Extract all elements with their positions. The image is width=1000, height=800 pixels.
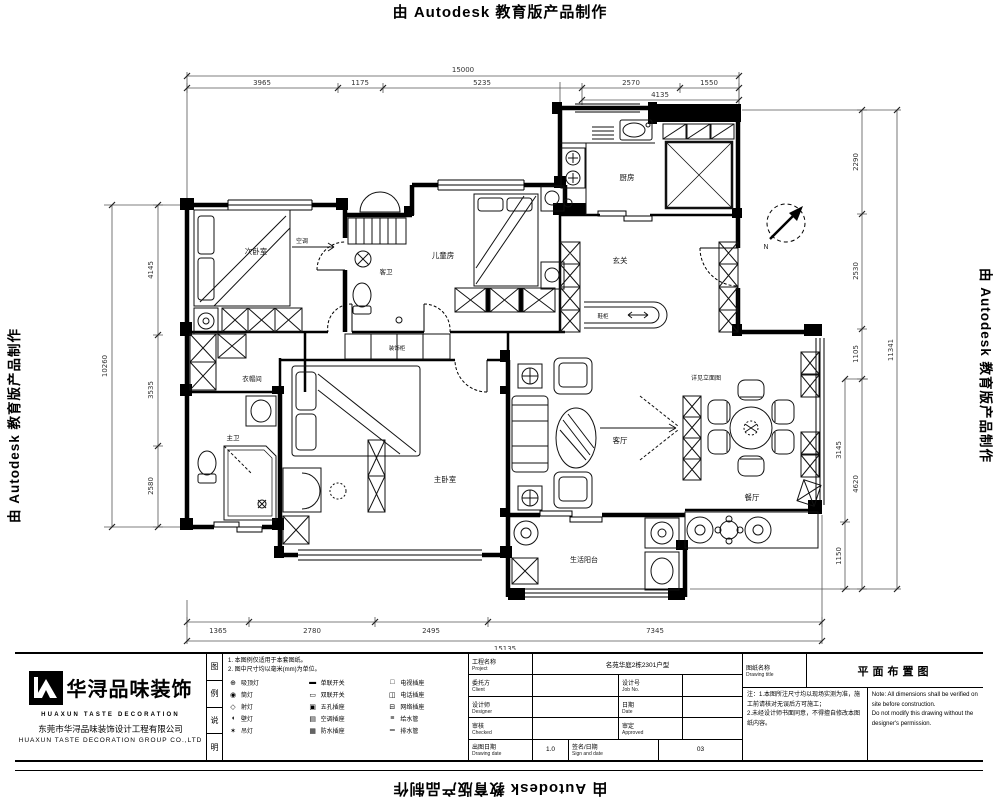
legend-label: 壁灯	[241, 714, 253, 723]
dim-label: 2290	[852, 153, 860, 171]
room-label-living-room: 客厅	[613, 435, 628, 445]
legend-label: 网络插座	[400, 702, 424, 711]
legend-label: 吊灯	[241, 726, 253, 735]
title-block-side-chars: 图 例 说 明	[207, 654, 223, 760]
company-logo-block: 华浔品味装饰 HUAXUN TASTE DECORATION 东莞市华浔品味装饰…	[15, 654, 207, 760]
legend-label: 给水管	[400, 714, 418, 723]
company-name-en: HUAXUN TASTE DECORATION	[41, 712, 180, 718]
switch-single-icon: ▬	[308, 679, 318, 686]
legend-item: ▤空调插座	[308, 714, 384, 723]
approved-value	[683, 718, 742, 738]
bay-balcony-fixtures	[685, 512, 818, 548]
elevator-shaft	[663, 124, 734, 208]
socket-5hole-icon: ▣	[308, 703, 318, 711]
dim-label: 1150	[835, 547, 843, 565]
label-shoe-cabinet: 鞋柜	[597, 312, 609, 320]
dim-label: 7345	[646, 627, 664, 635]
room-labels: 厨房 儿童房 客卫 次卧室 衣帽间 主卫 主卧室 客厅 餐厅 玄关 生活阳台 装…	[227, 172, 760, 564]
title-block: 华浔品味装饰 HUAXUN TASTE DECORATION 东莞市华浔品味装饰…	[15, 652, 983, 762]
legend-item: ≡给水管	[387, 714, 463, 723]
project-value: 名苑华庭2栋2301户型	[533, 654, 742, 674]
legend-label: 防水插座	[321, 726, 345, 735]
legend-label: 电视插座	[400, 678, 424, 687]
sheet-number: 03	[659, 740, 742, 760]
spotlight-icon: ◇	[228, 703, 238, 711]
dim-label: 1175	[351, 79, 369, 87]
drawing-title-panel: 图纸名称Drawing title 平面布置图 注：1.本图所注尺寸均以现场实测…	[743, 654, 983, 760]
living-room-furniture	[512, 358, 701, 510]
water-drain-icon: ═	[387, 727, 397, 734]
legend-item: ✶吊灯	[228, 726, 304, 735]
dim-label: 2495	[422, 627, 440, 635]
ceiling-lamp-icon: ⊕	[228, 679, 238, 687]
room-label-master-bedroom: 主卧室	[434, 474, 457, 484]
legend-item: ◉筒灯	[228, 690, 304, 699]
legend-label: 射灯	[241, 702, 253, 711]
date-label: 日期	[622, 700, 679, 709]
dim-label: 5235	[473, 79, 491, 87]
legend-grid: ⊕吸顶灯 ▬单联开关 □电视插座 ◉筒灯 ▭双联开关 ◫电话插座 ◇射灯 ▣五孔…	[228, 678, 463, 735]
date-label-en: Date	[622, 709, 679, 715]
room-label-guest-bath: 客卫	[380, 267, 394, 276]
notes-en-line2: Do not modify this drawing without the d…	[872, 710, 979, 729]
legend-label: 电话插座	[400, 690, 424, 699]
dim-label: 3535	[147, 381, 155, 399]
water-supply-icon: ≡	[387, 715, 397, 722]
approved-label: 审定	[622, 721, 679, 730]
dim-label: 3965	[253, 79, 271, 87]
side-char: 明	[207, 734, 222, 760]
wall-lamp-icon: ◖	[228, 715, 238, 722]
checked-label-en: Checked	[472, 730, 529, 736]
legend-label: 双联开关	[321, 690, 345, 699]
company-name-cn: 华浔品味装饰	[67, 680, 193, 700]
legend-label: 空调插座	[321, 714, 345, 723]
designer-label: 设计师	[472, 700, 529, 709]
company-fullname-cn: 东莞市华浔品味装饰设计工程有限公司	[38, 723, 183, 735]
annotation-ac: 空调	[296, 237, 308, 245]
north-label: N	[763, 243, 768, 251]
cloakroom-wardrobes	[190, 334, 246, 390]
kids-room-furniture	[455, 186, 564, 312]
project-label-en: Project	[472, 666, 529, 672]
drawdate-label: 出图日期	[472, 742, 529, 751]
pendant-lamp-icon: ✶	[228, 727, 238, 735]
floor-plan-canvas: 15000 3965 1175 5235 2570 1550 4135 1365…	[0, 0, 1000, 650]
legend-item: □电视插座	[387, 678, 463, 687]
side-char: 说	[207, 708, 222, 735]
title-block-fields: 工程名称Project 名苑华庭2栋2301户型 委托方Client 设计号Jo…	[469, 654, 743, 760]
legend-item: ◖壁灯	[228, 714, 304, 723]
room-label-bedroom2: 次卧室	[245, 246, 268, 256]
side-char: 图	[207, 654, 222, 681]
notes-cn-line2: 2.未经设计师书面同意，不得擅自修改本图纸内容。	[747, 710, 863, 729]
socket-net-icon: ⊟	[387, 703, 397, 711]
bedroom2-furniture	[194, 210, 334, 334]
room-label-master-bath: 主卫	[227, 433, 241, 442]
notes-en-line1: Note: All dimensions shall be verified o…	[872, 691, 979, 710]
dim-label: 1105	[852, 345, 860, 363]
client-label: 委托方	[472, 678, 529, 687]
socket-tv-icon: □	[387, 679, 397, 686]
date-value	[683, 697, 742, 717]
legend-item: ⊕吸顶灯	[228, 678, 304, 687]
room-label-kitchen: 厨房	[620, 172, 635, 182]
socket-wp-icon: ▦	[308, 727, 318, 735]
walls	[180, 102, 822, 600]
dim-label: 1365	[209, 627, 227, 635]
drawing-title-label: 图纸名称	[746, 663, 803, 672]
jobno-label: 设计号	[622, 678, 679, 687]
dim-label: 4145	[147, 261, 155, 279]
socket-tel-icon: ◫	[387, 691, 397, 699]
legend-item: ▣五孔插座	[308, 702, 384, 711]
sign-label: 签名/日期	[572, 742, 655, 751]
legend-panel: 1. 本图例仅适用于本套图纸。 2. 图中尺寸均以毫米(mm)为单位。 ⊕吸顶灯…	[223, 654, 469, 760]
dim-label: 1550	[700, 79, 718, 87]
balcony-fixtures	[512, 518, 679, 590]
label-cabinet: 装饰柜	[389, 344, 406, 352]
dim-label: 4620	[852, 475, 860, 493]
legend-item: ⊟网络插座	[387, 702, 463, 711]
room-label-cloakroom: 衣帽间	[242, 374, 262, 383]
doors	[214, 211, 738, 532]
dim-label: 10260	[101, 355, 109, 377]
socket-ac-icon: ▤	[308, 715, 318, 723]
room-label-kids-room: 儿童房	[432, 250, 455, 260]
dim-label: 15135	[494, 645, 516, 650]
room-label-balcony: 生活阳台	[570, 555, 598, 564]
legend-label: 排水管	[400, 726, 418, 735]
watermark-bottom: 由 Autodesk 教育版产品制作	[0, 779, 1000, 800]
side-char: 例	[207, 681, 222, 708]
version-value: 1.0	[533, 740, 569, 760]
legend-item: ═排水管	[387, 726, 463, 735]
north-arrow: N	[763, 204, 805, 251]
checked-value	[533, 718, 619, 738]
legend-item: ▬单联开关	[308, 678, 384, 687]
dim-label: 3145	[835, 441, 843, 459]
designer-label-en: Designer	[472, 709, 529, 715]
drawing-title-value: 平面布置图	[807, 654, 983, 687]
company-logo-icon	[29, 671, 63, 710]
wall-fills	[180, 102, 822, 600]
foyer-cabinets	[560, 242, 738, 332]
drawing-title-label-en: Drawing title	[746, 672, 803, 678]
drawdate-label-en: Drawing date	[472, 751, 529, 757]
approved-label-en: Approved	[622, 730, 679, 736]
legend-label: 五孔插座	[321, 702, 345, 711]
dim-label: 2780	[303, 627, 321, 635]
legend-note: 1. 本图例仅适用于本套图纸。	[228, 657, 463, 666]
legend-item: ◇射灯	[228, 702, 304, 711]
client-value	[533, 675, 619, 695]
dim-label: 4135	[651, 91, 669, 99]
room-label-dining-room: 餐厅	[745, 493, 760, 502]
dim-label: 2530	[852, 262, 860, 280]
dim-label: 15000	[452, 66, 474, 74]
master-bedroom-furniture	[283, 334, 450, 544]
sign-label-en: Sign and date	[572, 751, 655, 757]
legend-item: ▦防水插座	[308, 726, 384, 735]
legend-label: 单联开关	[321, 678, 345, 687]
jobno-value	[683, 675, 742, 695]
company-fullname-en: HUAXUN TASTE DECORATION GROUP CO.,LTD	[19, 737, 203, 744]
kitchen-fixtures	[560, 120, 655, 215]
downlight-icon: ◉	[228, 691, 238, 699]
dining-room-furniture	[708, 352, 821, 506]
legend-label: 吸顶灯	[241, 678, 259, 687]
sheet-border-line	[15, 770, 983, 771]
client-label-en: Client	[472, 687, 529, 693]
guest-bath-fixtures	[348, 192, 406, 323]
switch-double-icon: ▭	[308, 691, 318, 699]
checked-label: 审核	[472, 721, 529, 730]
legend-label: 筒灯	[241, 690, 253, 699]
legend-item: ▭双联开关	[308, 690, 384, 699]
dim-label: 2580	[147, 477, 155, 495]
notes-cn-line1: 注：1.本图所注尺寸均以现场实测为准，施工前请核对无误后方可施工；	[747, 691, 863, 710]
jobno-label-en: Job No.	[622, 687, 679, 693]
legend-item: ◫电话插座	[387, 690, 463, 699]
room-label-foyer: 玄关	[613, 255, 628, 265]
dim-label: 11341	[887, 339, 895, 361]
master-bath-fixtures	[198, 396, 276, 520]
legend-note: 2. 图中尺寸均以毫米(mm)为单位。	[228, 666, 463, 675]
dim-label: 2570	[622, 79, 640, 87]
designer-value	[533, 697, 619, 717]
annotation-tv: 详见立面图	[691, 374, 721, 382]
project-label: 工程名称	[472, 657, 529, 666]
